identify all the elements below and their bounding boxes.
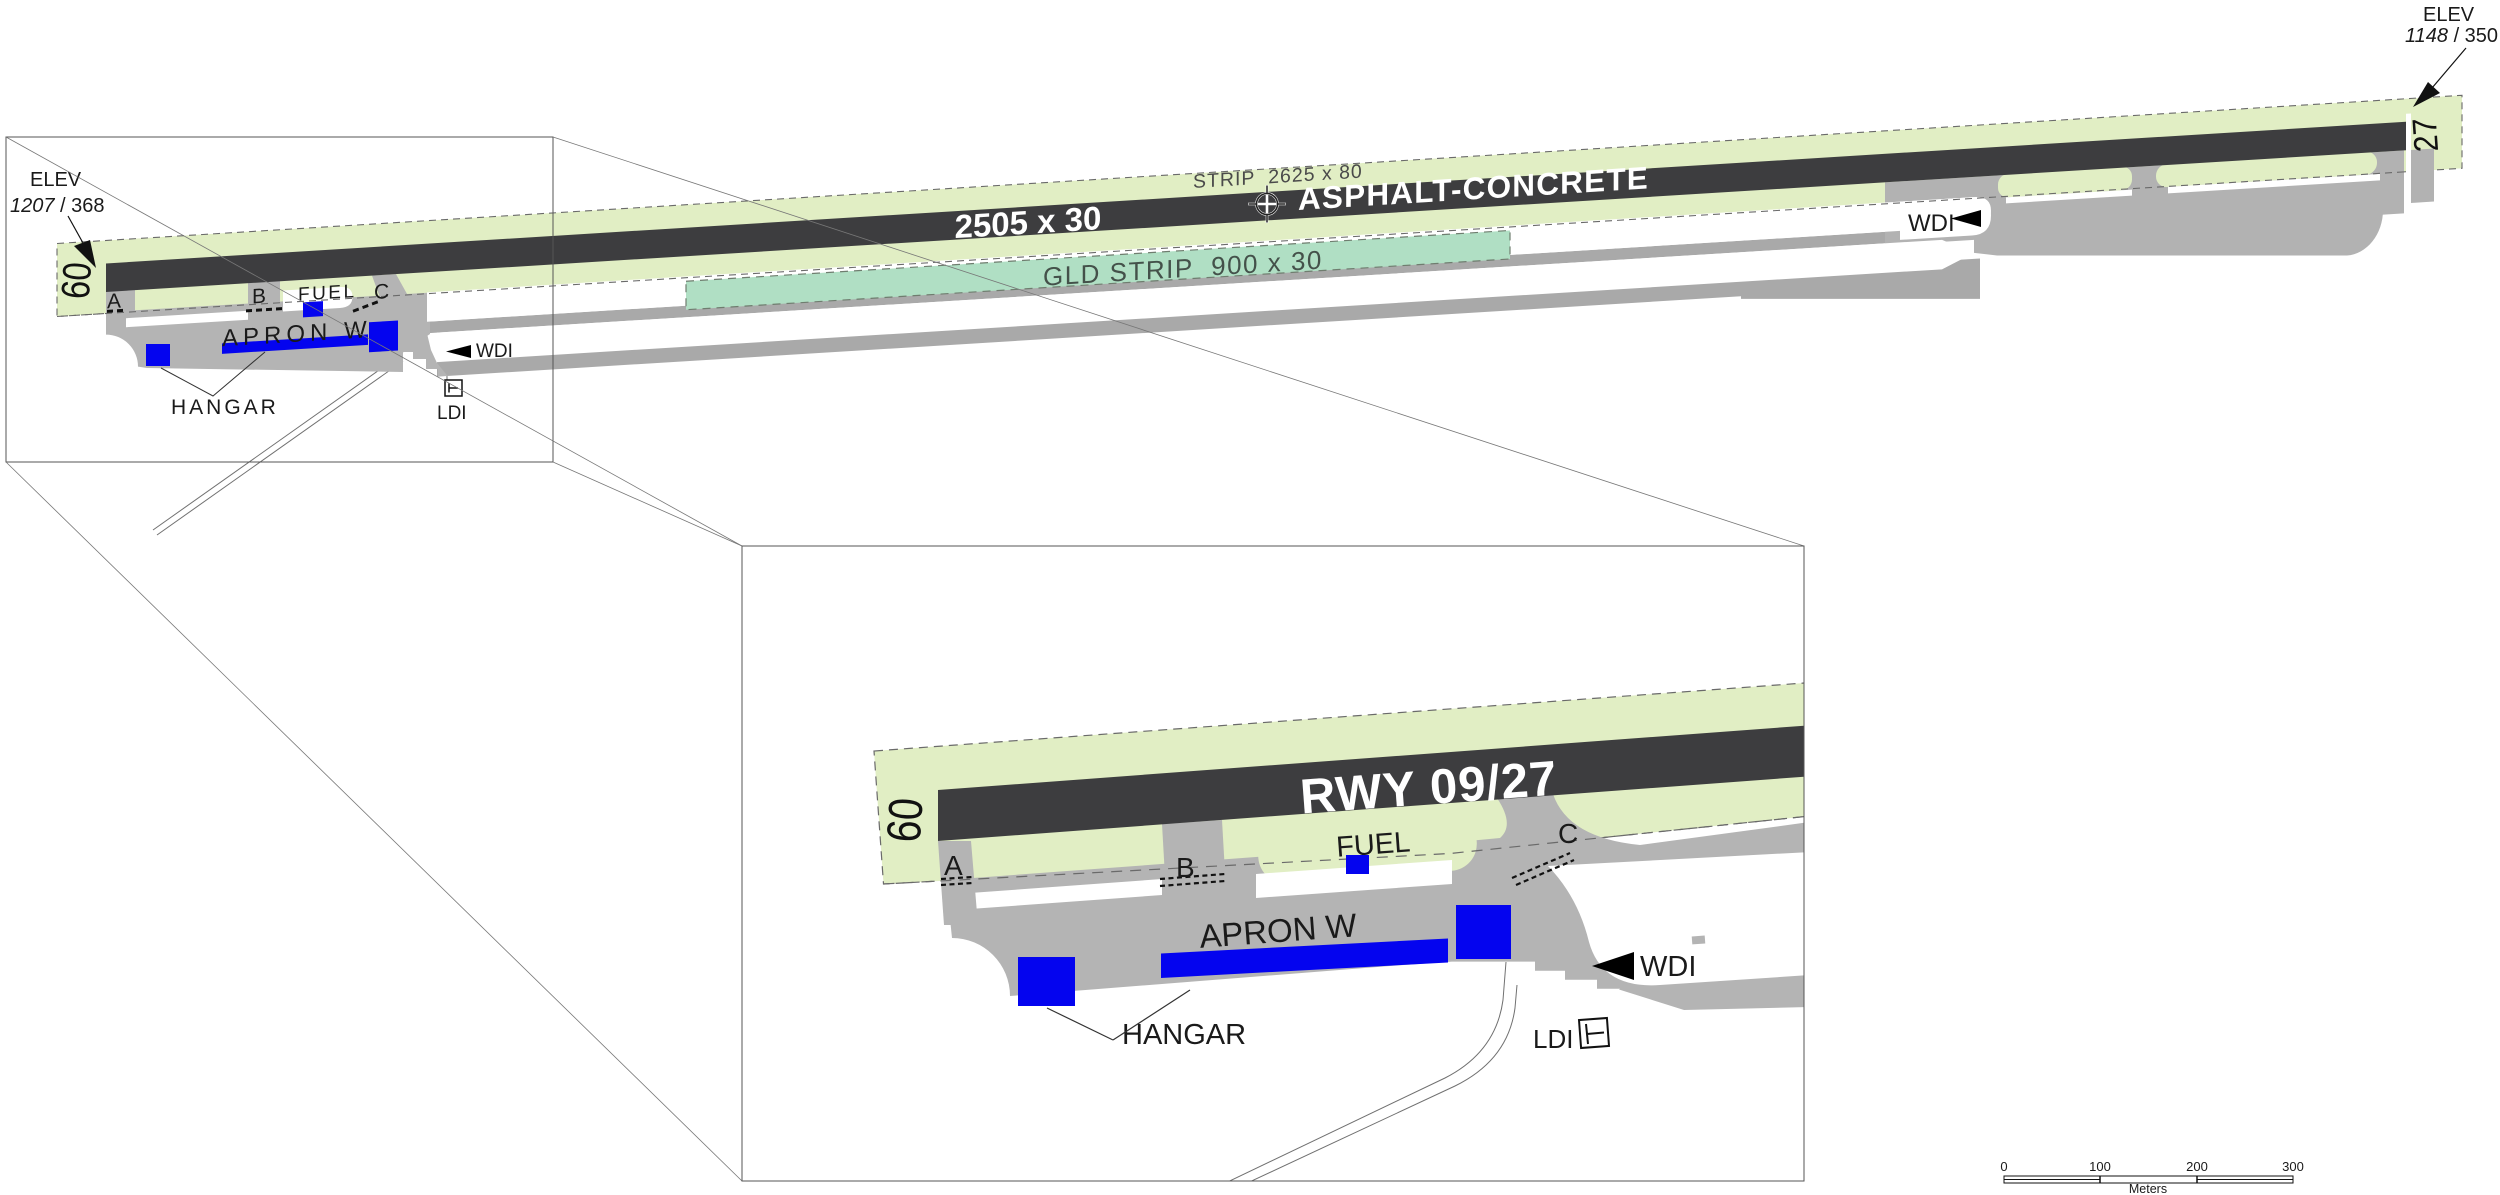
svg-text:1148 / 350: 1148 / 350 [2405, 25, 2498, 47]
svg-text:LDI: LDI [437, 403, 467, 424]
svg-text:Meters: Meters [2129, 1182, 2167, 1195]
svg-text:WDI: WDI [1908, 210, 1955, 237]
svg-text:ELEV: ELEV [30, 169, 82, 191]
svg-text:300: 300 [2282, 1159, 2304, 1174]
svg-text:200: 200 [2186, 1159, 2208, 1174]
svg-text:ELEV: ELEV [2423, 4, 2475, 26]
svg-text:1207 / 368: 1207 / 368 [10, 195, 105, 217]
svg-text:B: B [252, 285, 266, 309]
svg-text:HANGAR: HANGAR [171, 396, 279, 419]
svg-text:HANGAR: HANGAR [1122, 1019, 1246, 1051]
svg-text:FUEL: FUEL [1335, 826, 1411, 863]
svg-text:C: C [374, 280, 389, 304]
svg-text:LDI: LDI [1533, 1024, 1573, 1054]
svg-text:FUEL: FUEL [298, 281, 357, 306]
svg-text:B: B [1176, 852, 1195, 883]
svg-text:WDI: WDI [476, 341, 513, 362]
svg-text:A: A [944, 850, 963, 881]
svg-text:0: 0 [2000, 1159, 2007, 1174]
svg-text:A: A [107, 290, 121, 314]
svg-text:100: 100 [2089, 1159, 2111, 1174]
svg-text:09: 09 [876, 796, 933, 843]
svg-text:C: C [1558, 818, 1578, 849]
svg-text:WDI: WDI [1640, 951, 1696, 983]
svg-text:27: 27 [2405, 117, 2445, 154]
svg-text:09: 09 [53, 261, 100, 301]
